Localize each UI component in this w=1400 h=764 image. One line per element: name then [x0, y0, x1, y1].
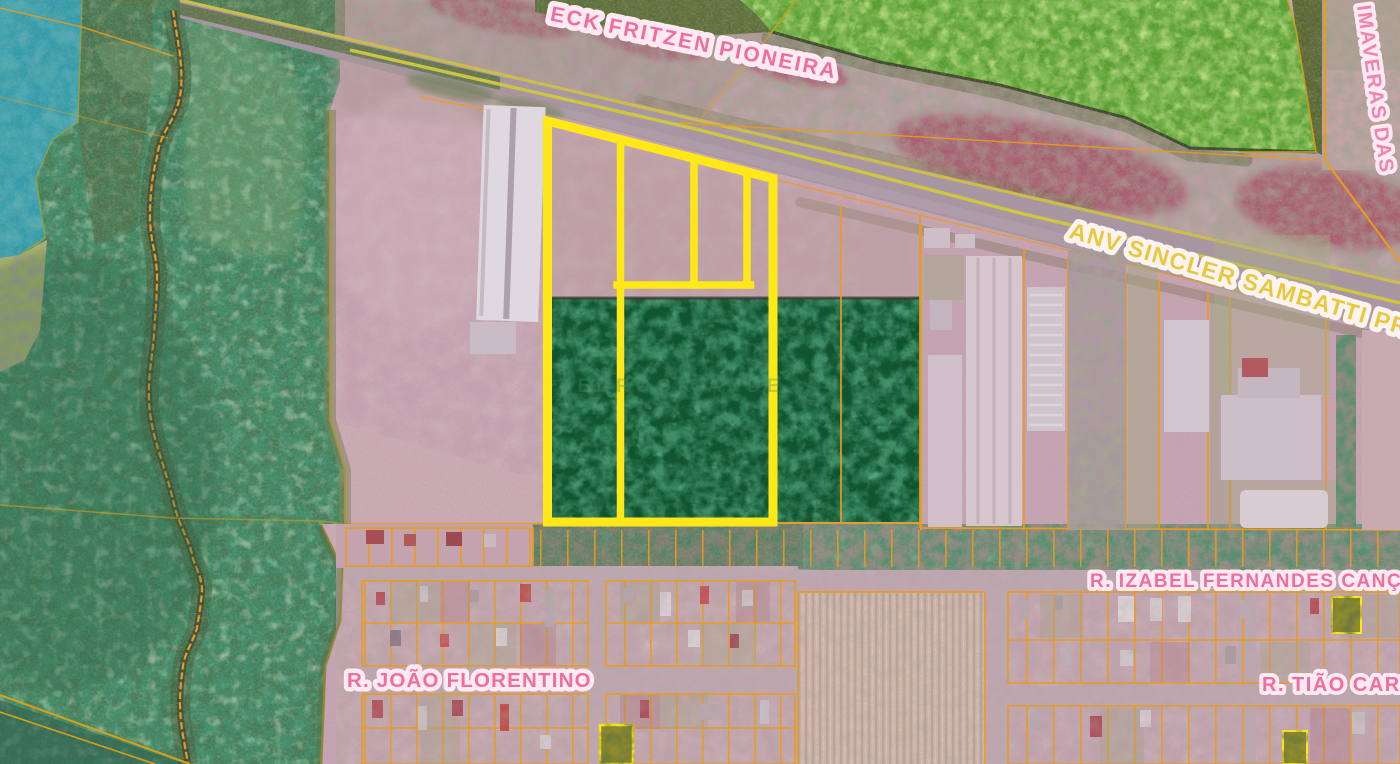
svg-text:TEDROOK ANDE: TEDROOK ANDE	[560, 376, 785, 397]
svg-text:R. JOÃO FLORENTINO: R. JOÃO FLORENTINO	[347, 669, 592, 692]
svg-text:R. IZABEL FERNANDES CANÇADO: R. IZABEL FERNANDES CANÇADO	[1090, 571, 1400, 592]
svg-text:R. TIÃO CARREIRO: R. TIÃO CARREIRO	[1262, 673, 1400, 696]
